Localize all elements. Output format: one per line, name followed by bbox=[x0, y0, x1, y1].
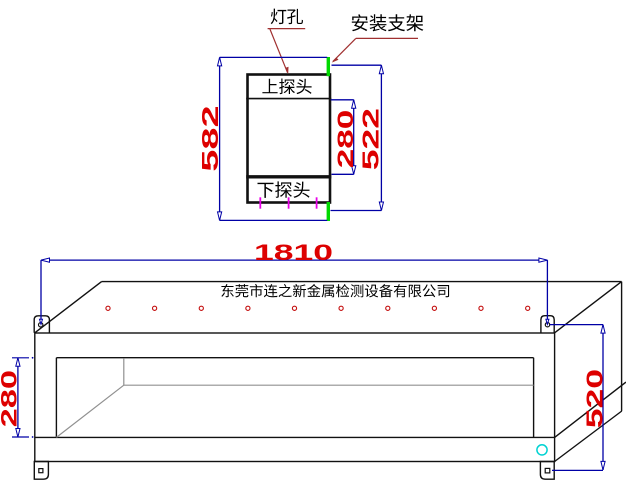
svg-text:280: 280 bbox=[0, 370, 22, 428]
svg-text:582: 582 bbox=[197, 105, 223, 171]
svg-text:522: 522 bbox=[357, 108, 383, 170]
svg-text:520: 520 bbox=[581, 369, 607, 428]
svg-text:1810: 1810 bbox=[254, 240, 333, 265]
svg-text:280: 280 bbox=[333, 110, 358, 169]
